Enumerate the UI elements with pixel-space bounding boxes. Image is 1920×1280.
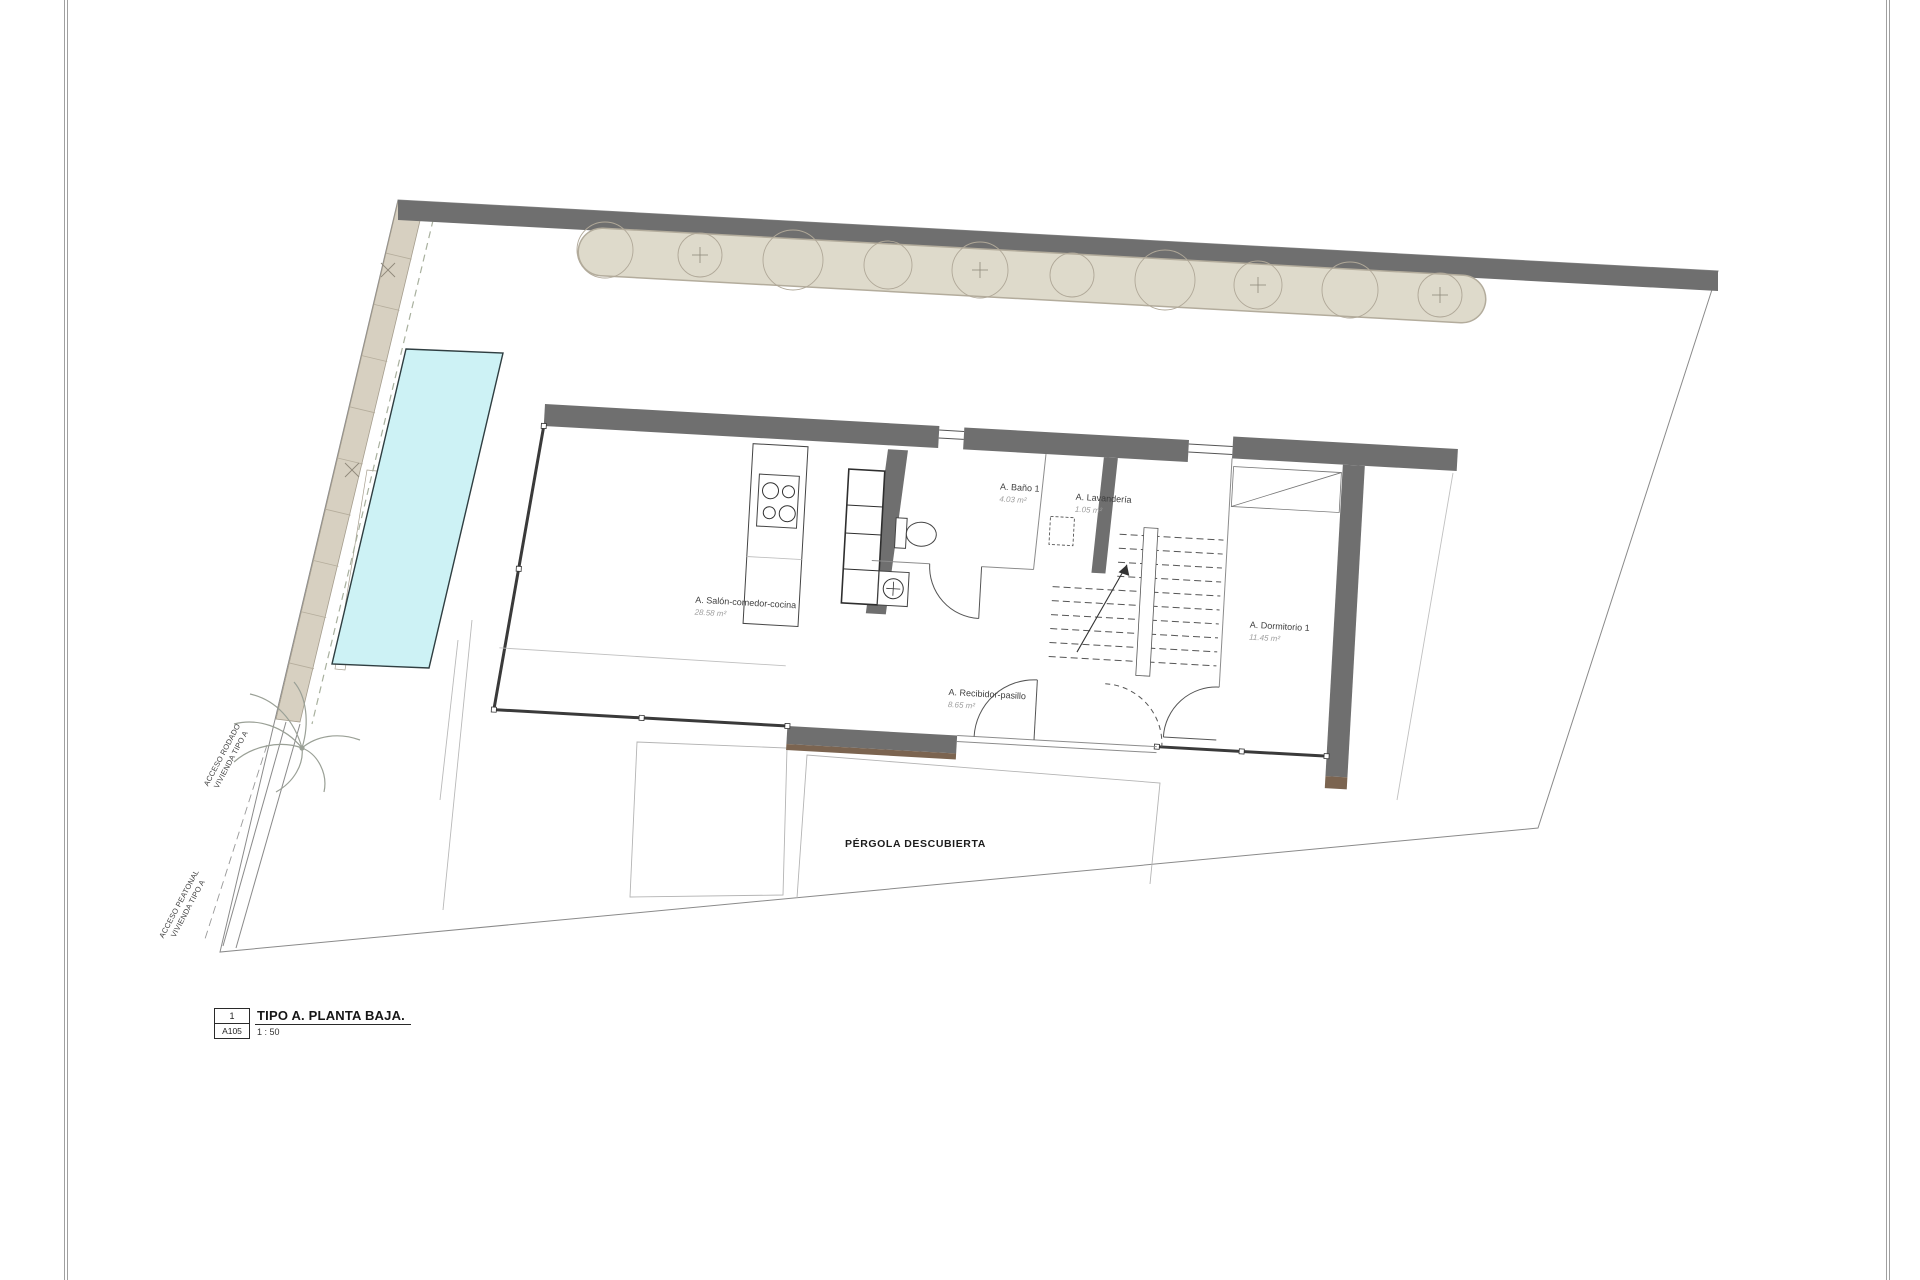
room-area-lavanderia: 1.05 m²	[1075, 505, 1103, 516]
drawing-scale: 1 : 50	[255, 1027, 411, 1037]
drawing-sheet: PÉRGOLA DESCUBIERTA	[0, 0, 1920, 1280]
access-road-label: ACCESO RODADO VIVIENDA TIPO A	[202, 722, 251, 792]
drawing-number: 1	[214, 1008, 250, 1024]
cooktop-icon	[757, 474, 800, 528]
title-block: 1 A105 TIPO A. PLANTA BAJA. 1 : 50	[214, 1008, 411, 1039]
access-pedestrian-label: ACCESO PEATONAL VIVIENDA TIPO A	[157, 868, 209, 944]
sink-icon	[877, 571, 909, 607]
room-area-dormitorio1: 11.45 m²	[1249, 633, 1281, 644]
pergola-label: PÉRGOLA DESCUBIERTA	[845, 837, 986, 850]
room-area-bano1: 4.03 m²	[999, 495, 1027, 506]
room-area-recibidor: 8.65 m²	[948, 700, 976, 711]
drawing-title: TIPO A. PLANTA BAJA.	[255, 1008, 411, 1025]
bedroom-window-icon	[1231, 467, 1341, 513]
title-block-boxes: 1 A105	[214, 1008, 250, 1039]
floor-plan-canvas: PÉRGOLA DESCUBIERTA	[0, 0, 1920, 1280]
sheet-code: A105	[214, 1024, 250, 1039]
room-area-salon: 28.58 m²	[693, 608, 726, 619]
